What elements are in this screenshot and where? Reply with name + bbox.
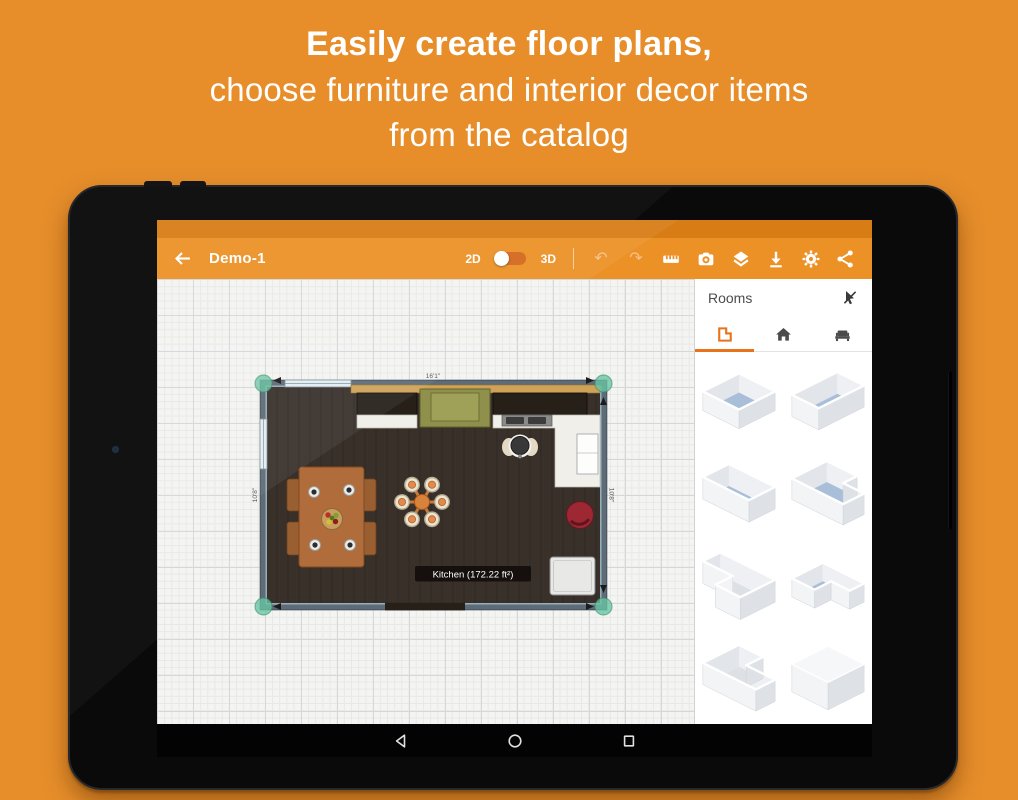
room-shape-l-shape-room-4[interactable] xyxy=(695,632,784,724)
pointer-off-icon[interactable] xyxy=(841,289,859,307)
tablet-power-button xyxy=(144,181,172,187)
tablet-device: Demo-1 2D 3D ↶ ↷ xyxy=(68,185,958,790)
label-2d: 2D xyxy=(465,252,480,266)
tab-room-shapes[interactable] xyxy=(695,317,754,351)
rooms-panel-title: Rooms xyxy=(708,290,752,306)
back-arrow-icon[interactable] xyxy=(171,248,193,270)
status-bar xyxy=(157,220,872,238)
measure-top: 16'1" xyxy=(426,373,441,380)
hero-line-3: from the catalog xyxy=(0,112,1018,157)
cabinet-left[interactable] xyxy=(357,393,417,415)
window-top[interactable] xyxy=(285,380,351,387)
window-left[interactable] xyxy=(260,419,267,469)
stove[interactable] xyxy=(502,415,552,426)
label-3d: 3D xyxy=(541,252,556,266)
nav-home-icon[interactable] xyxy=(505,731,524,750)
android-navbar xyxy=(157,724,872,757)
tab-furniture[interactable] xyxy=(813,317,872,351)
ruler-icon[interactable] xyxy=(661,249,681,269)
door-opening[interactable] xyxy=(385,603,465,611)
nav-recents-icon[interactable] xyxy=(619,731,638,750)
toggle-knob xyxy=(494,251,509,266)
plan-title: Demo-1 xyxy=(209,250,266,267)
floorplan-drawing: 16'1" 10'8" 10'8" Kitchen (172.22 ft²) xyxy=(157,279,694,724)
tablet-screen: Demo-1 2D 3D ↶ ↷ xyxy=(157,220,872,757)
counter-white-left[interactable] xyxy=(357,415,417,428)
sofa-green[interactable] xyxy=(420,389,490,427)
tablet-volume-button xyxy=(180,181,206,187)
nav-back-icon[interactable] xyxy=(391,731,410,750)
room-shape-l-shape-room-1[interactable] xyxy=(784,447,873,539)
screenshot-camera-icon[interactable] xyxy=(696,249,716,269)
settings-gear-icon[interactable] xyxy=(801,249,821,269)
undo-icon[interactable]: ↶ xyxy=(591,249,611,269)
hero-line-1: Easily create floor plans, xyxy=(0,22,1018,67)
room-label: Kitchen (172.22 ft²) xyxy=(415,566,531,582)
room-shape-wide-rect-room[interactable] xyxy=(695,447,784,539)
redo-icon[interactable]: ↷ xyxy=(626,249,646,269)
room-shape-closed-room[interactable] xyxy=(784,632,873,724)
appliance-square[interactable] xyxy=(550,557,595,595)
fruit-bowl xyxy=(322,509,343,530)
floorplan-canvas[interactable]: 16'1" 10'8" 10'8" Kitchen (172.22 ft²) xyxy=(157,279,694,724)
measure-right: 10'8" xyxy=(608,488,615,503)
layers-icon[interactable] xyxy=(731,249,751,269)
share-icon[interactable] xyxy=(836,249,856,269)
hero-heading: Easily create floor plans, choose furnit… xyxy=(0,22,1018,157)
side-speaker-slot xyxy=(948,372,952,529)
tab-home[interactable] xyxy=(754,317,813,351)
rooms-panel-header: Rooms xyxy=(695,279,872,317)
dining-table-set[interactable] xyxy=(287,467,376,567)
rooms-panel: Rooms xyxy=(694,279,872,724)
active-tab-underline xyxy=(695,349,754,352)
measure-left: 10'8" xyxy=(252,487,259,502)
room-shape-l-shape-room-2[interactable] xyxy=(695,540,784,632)
hero-line-2: choose furniture and interior decor item… xyxy=(0,67,1018,112)
front-camera-icon xyxy=(112,446,119,453)
room-shape-l-shape-room-3[interactable] xyxy=(784,540,873,632)
rooms-panel-tabs xyxy=(695,317,872,352)
room-shape-grid xyxy=(695,352,872,724)
cabinet-right[interactable] xyxy=(493,393,587,415)
2d-3d-toggle[interactable] xyxy=(496,252,526,265)
room-shape-square-room[interactable] xyxy=(695,355,784,447)
room-label-text: Kitchen (172.22 ft²) xyxy=(433,570,514,581)
fridge[interactable] xyxy=(577,434,598,474)
app-toolbar: Demo-1 2D 3D ↶ ↷ xyxy=(157,238,872,279)
download-icon[interactable] xyxy=(766,249,786,269)
room-shape-tall-rect-room[interactable] xyxy=(784,355,873,447)
toolbar-divider xyxy=(573,248,574,269)
